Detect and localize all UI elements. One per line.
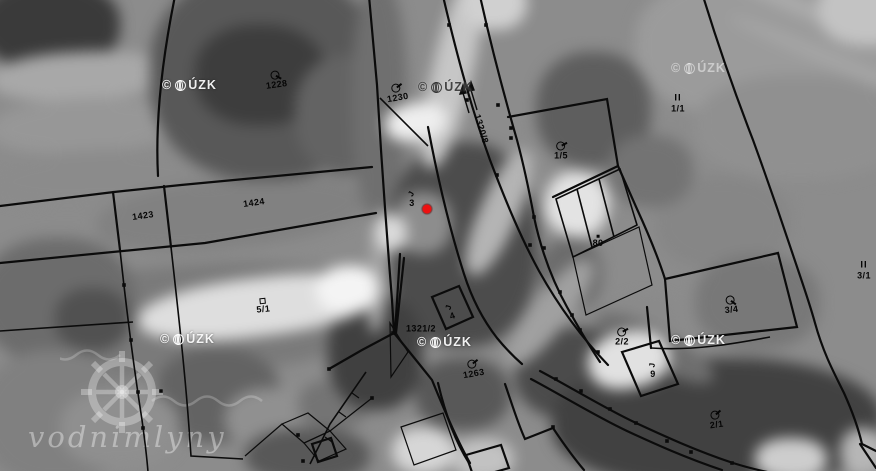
parcel-label: 3/4 <box>723 295 739 315</box>
orchard-symbol <box>725 294 736 305</box>
parcel-labels-layer: 122812301320/8142314241/5II1/1J3805/1132… <box>0 0 876 471</box>
parcel-label: J4 <box>445 303 456 322</box>
parcel-label: II1/1 <box>671 93 685 113</box>
parcel-label: J9 <box>650 361 655 379</box>
cuzk-globe-icon <box>175 80 186 91</box>
parcel-label: 80 <box>593 235 604 248</box>
cuzk-globe-icon <box>173 334 184 345</box>
location-marker[interactable] <box>423 205 432 214</box>
cuzk-watermark: ©ÚZK <box>418 81 473 94</box>
parcel-label: 2/1 <box>708 410 724 431</box>
roman-ii-symbol: II <box>860 260 867 270</box>
cuzk-watermark: ©ÚZK <box>417 336 472 349</box>
cuzk-globe-icon <box>684 335 695 346</box>
cuzk-watermark: ©ÚZK <box>160 333 215 346</box>
parcel-label: 1263 <box>461 358 486 380</box>
cuzk-watermark: ©ÚZK <box>671 334 726 347</box>
roman-ii-symbol: II <box>674 93 681 103</box>
parcel-label: 1423 <box>132 210 155 222</box>
cuzk-watermark: ©ÚZK <box>671 62 726 75</box>
house-symbol: J <box>649 362 657 368</box>
parcel-label: 1230 <box>385 82 410 104</box>
parcel-label: 5/1 <box>255 297 270 314</box>
road-parcel-label: 1320/8 <box>472 113 489 144</box>
parcel-label: 1228 <box>264 69 288 91</box>
parcel-label: 1424 <box>243 197 266 209</box>
cuzk-globe-icon <box>684 63 695 74</box>
parcel-label: 1/5 <box>554 142 568 161</box>
parcel-label: II3/1 <box>857 260 871 280</box>
house-symbol: J <box>445 304 454 311</box>
parcel-label: 1321/2 <box>406 325 436 334</box>
cuzk-globe-icon <box>430 337 441 348</box>
house-symbol: J <box>407 190 416 198</box>
map-canvas[interactable]: vodnimlyny <box>0 0 876 471</box>
cuzk-globe-icon <box>431 82 442 93</box>
cuzk-watermark: ©ÚZK <box>162 79 217 92</box>
parcel-label: J3 <box>409 190 414 208</box>
parcel-label: 2/2 <box>615 328 629 347</box>
